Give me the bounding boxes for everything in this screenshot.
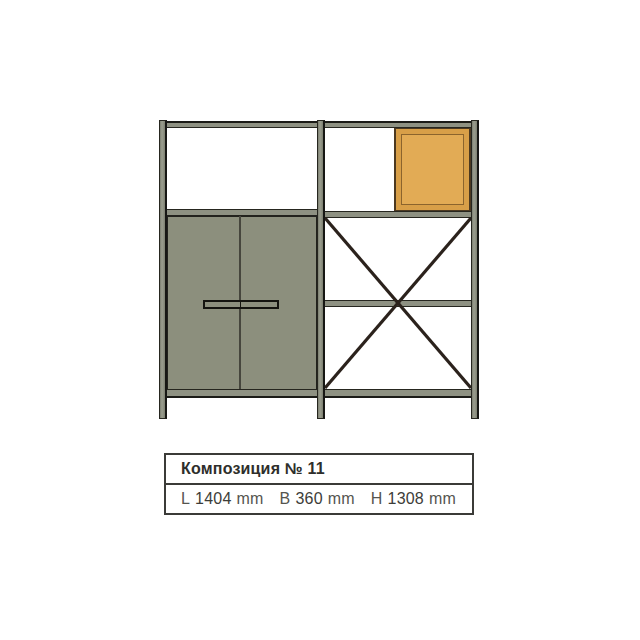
right-post [471, 120, 479, 419]
dim-value: 1308 [388, 490, 424, 508]
dim-unit: mm [237, 490, 264, 508]
composition-title: Композиция № 11 [181, 460, 325, 478]
cabinet-handle-bar [203, 300, 279, 309]
dimension-height: H 1308 mm [371, 490, 456, 508]
middle-post [317, 120, 325, 419]
dim-label: H [371, 490, 383, 508]
cross-brace-icon [324, 217, 472, 389]
page-background: Композиция № 11 L 1404 mm B 360 mm H 130… [0, 0, 640, 640]
spec-table: Композиция № 11 L 1404 mm B 360 mm H 130… [164, 453, 474, 515]
dimension-length: L 1404 mm [181, 490, 264, 508]
dimensions-row: L 1404 mm B 360 mm H 1308 mm [166, 485, 472, 513]
dim-unit: mm [429, 490, 456, 508]
cabinet-handle-split [240, 302, 241, 307]
dim-label: B [280, 490, 291, 508]
accent-box [394, 127, 471, 212]
left-post [159, 120, 167, 419]
dim-unit: mm [328, 490, 355, 508]
accent-box-panel [401, 134, 464, 205]
furniture-drawing [0, 0, 640, 640]
dimension-depth: B 360 mm [280, 490, 355, 508]
dim-label: L [181, 490, 190, 508]
dim-value: 1404 [195, 490, 231, 508]
spec-title-row: Композиция № 11 [166, 455, 472, 485]
dim-value: 360 [295, 490, 322, 508]
